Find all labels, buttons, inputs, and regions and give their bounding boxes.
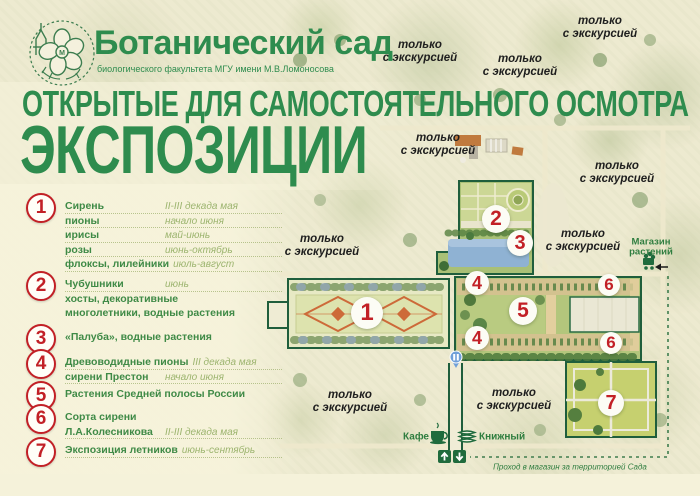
legend-row: Сорта сирени (65, 410, 282, 425)
excursion-only-label: толькос экскурсией (313, 389, 387, 415)
bloom-period: май-июнь (165, 229, 282, 244)
legend-number-badge: 4 (26, 349, 56, 379)
legend-item-4: 4Древоводидные пионыIII декада маясирени… (26, 355, 282, 384)
legend-item-2: 2Чубушникииюньхосты, декоративныемноголе… (26, 277, 282, 321)
plant-name: Древоводидные пионы (65, 355, 192, 370)
plant-name: ирисы (65, 228, 165, 243)
excursion-only-label: толькос экскурсией (383, 39, 457, 65)
excursion-only-label: толькос экскурсией (580, 160, 654, 186)
legend-rows: Сорта сирениЛ.А.КолесниковаII-III декада… (65, 410, 282, 439)
bloom-period: июнь (165, 278, 282, 293)
legend: 1СиреньII-III декада маяпионыначало июня… (26, 0, 282, 496)
plant-shop-line2: растений (629, 248, 673, 258)
legend-item-3: 3«Палуба», водные растения (26, 330, 282, 354)
legend-row: ирисымай-июнь (65, 228, 282, 243)
legend-item-6: 6Сорта сирениЛ.А.КолесниковаII-III декад… (26, 410, 282, 439)
bloom-period: июнь-сентябрь (182, 444, 282, 459)
excursion-only-label: толькос экскурсией (401, 132, 475, 158)
legend-number-badge: 1 (26, 193, 56, 223)
legend-rows: Древоводидные пионыIII декада маясирени … (65, 355, 282, 384)
plant-name: Л.А.Колесникова (65, 425, 165, 440)
legend-item-7: 7Экспозиция летниковиюнь-сентябрь (26, 443, 282, 467)
bloom-period: II-III декада мая (165, 200, 282, 215)
map-exposition-marker-6: 6 (598, 274, 620, 296)
legend-row: Растения Средней полосы России (65, 387, 282, 402)
plant-name: флоксы, лилейники (65, 257, 173, 272)
bloom-period: июль-август (173, 258, 282, 273)
legend-row: «Палуба», водные растения (65, 330, 282, 345)
legend-item-5: 5Растения Средней полосы России (26, 387, 282, 411)
bloom-period: III декада мая (192, 356, 282, 371)
legend-row: пионыначало июня (65, 214, 282, 229)
plant-name: Экспозиция летников (65, 443, 182, 458)
legend-row: многолетники, водные растения (65, 306, 282, 321)
excursion-only-label: толькос экскурсией (546, 228, 620, 254)
bookstore-label: Книжный (479, 432, 525, 443)
bloom-period: июнь-октябрь (165, 244, 282, 259)
legend-row: флоксы, лилейникииюль-август (65, 257, 282, 272)
plant-name: Сорта сирени (65, 410, 165, 425)
map-exposition-marker-5: 5 (509, 297, 537, 325)
map-exposition-marker-6: 6 (600, 332, 622, 354)
plant-name: Чубушники (65, 277, 165, 292)
legend-rows: Экспозиция летниковиюнь-сентябрь (65, 443, 282, 458)
bloom-period: начало июня (165, 215, 282, 230)
legend-number-badge: 6 (26, 404, 56, 434)
legend-item-1: 1СиреньII-III декада маяпионыначало июня… (26, 199, 282, 272)
plant-shop-label: Магазин растений (629, 238, 673, 259)
excursion-only-label: толькос экскурсией (563, 15, 637, 41)
map-exposition-marker-1: 1 (351, 297, 383, 329)
cafe-label: Кафе (403, 432, 429, 443)
plant-name: розы (65, 243, 165, 258)
legend-row: хосты, декоративные (65, 292, 282, 307)
shop-access-note: Проход в магазин за территорией Сада (493, 463, 647, 472)
map-exposition-marker-4: 4 (465, 326, 489, 350)
legend-number-badge: 7 (26, 437, 56, 467)
legend-rows: Чубушникииюньхосты, декоративныемноголет… (65, 277, 282, 321)
legend-row: Чубушникииюнь (65, 277, 282, 292)
excursion-only-label: толькос экскурсией (477, 387, 551, 413)
legend-row: Древоводидные пионыIII декада мая (65, 355, 282, 370)
legend-rows: «Палуба», водные растения (65, 330, 282, 345)
excursion-only-label: толькос экскурсией (285, 233, 359, 259)
legend-rows: Растения Средней полосы России (65, 387, 282, 402)
bloom-period: начало июня (165, 371, 282, 386)
map-exposition-marker-2: 2 (482, 205, 510, 233)
plant-name: сирени Престон (65, 370, 165, 385)
bloom-period: II-III декада мая (165, 426, 282, 441)
excursion-only-label: толькос экскурсией (483, 53, 557, 79)
legend-row: сирени Престонначало июня (65, 370, 282, 385)
legend-row: розыиюнь-октябрь (65, 243, 282, 258)
plant-name: многолетники, водные растения (65, 306, 239, 321)
plant-name: Сирень (65, 199, 165, 214)
map-exposition-marker-4: 4 (465, 271, 489, 295)
map-exposition-marker-7: 7 (598, 390, 624, 416)
plant-name: «Палуба», водные растения (65, 330, 216, 345)
legend-row: Л.А.КолесниковаII-III декада мая (65, 425, 282, 440)
plant-name: пионы (65, 214, 165, 229)
legend-rows: СиреньII-III декада маяпионыначало июняи… (65, 199, 282, 272)
plant-name: хосты, декоративные (65, 292, 182, 307)
plant-name: Растения Средней полосы России (65, 387, 249, 402)
legend-number-badge: 2 (26, 271, 56, 301)
legend-row: СиреньII-III декада мая (65, 199, 282, 214)
legend-row: Экспозиция летниковиюнь-сентябрь (65, 443, 282, 458)
map-exposition-marker-3: 3 (507, 230, 533, 256)
